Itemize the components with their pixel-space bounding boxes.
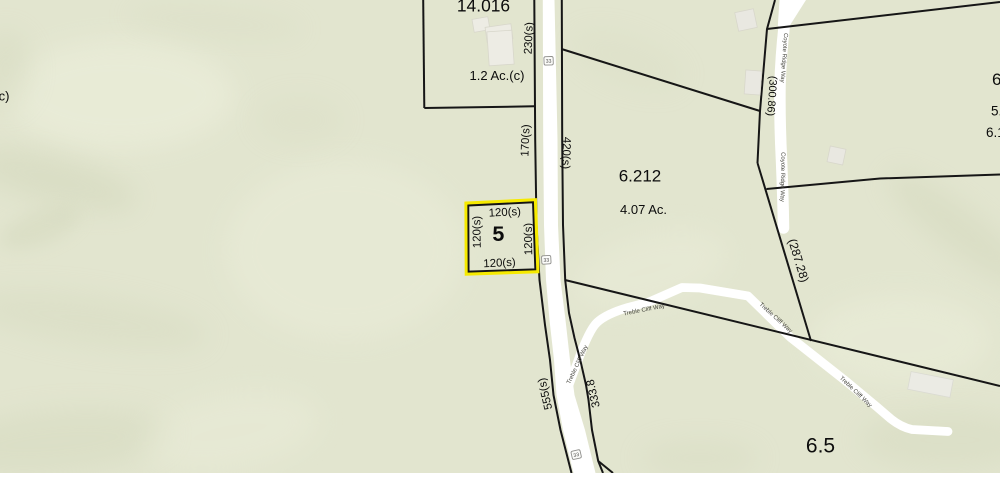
svg-text:230(s): 230(s) (523, 22, 536, 55)
svg-text:1.2 Ac.(c): 1.2 Ac.(c) (470, 68, 525, 83)
svg-text:120(s): 120(s) (488, 206, 521, 220)
svg-text:120(s): 120(s) (483, 257, 516, 271)
svg-text:Coyote Ridge Way: Coyote Ridge Way (779, 152, 786, 202)
svg-text:4.07 Ac.: 4.07 Ac. (620, 202, 667, 217)
svg-text:5.2: 5.2 (991, 104, 1000, 119)
svg-text:1.3 Ac.(c): 1.3 Ac.(c) (0, 89, 10, 104)
svg-text:420(s): 420(s) (559, 137, 572, 170)
svg-text:14.016: 14.016 (457, 0, 510, 16)
svg-text:6.212: 6.212 (619, 167, 662, 186)
svg-text:170(s): 170(s) (519, 124, 532, 157)
svg-text:5: 5 (492, 222, 504, 246)
svg-text:33: 33 (543, 258, 549, 264)
svg-text:120(s): 120(s) (523, 223, 536, 256)
svg-text:6: 6 (992, 70, 1000, 89)
svg-text:6.5: 6.5 (806, 434, 835, 457)
svg-text:6.13: 6.13 (986, 125, 1000, 140)
svg-text:120(s): 120(s) (471, 216, 484, 249)
svg-text:33: 33 (546, 59, 552, 65)
